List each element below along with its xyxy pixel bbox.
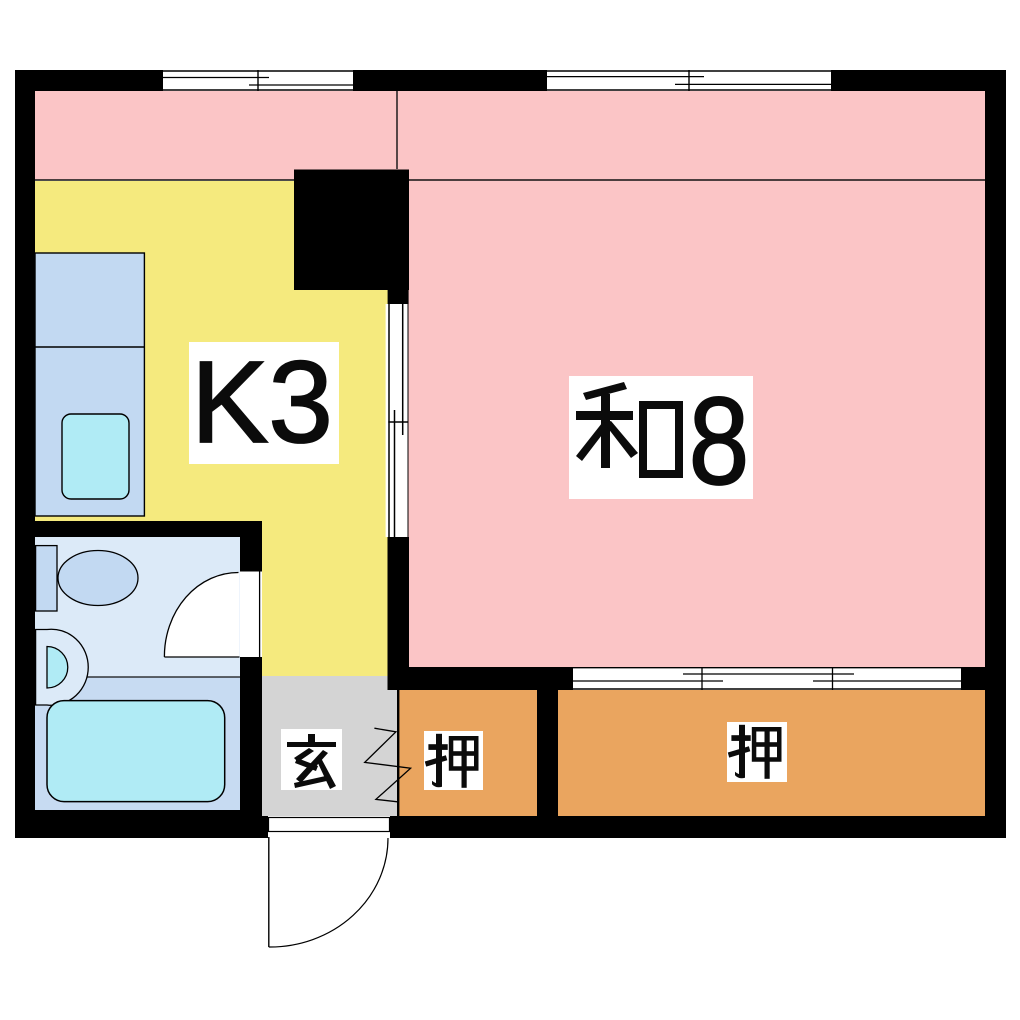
svg-text:K3: K3 <box>191 337 333 467</box>
svg-text:8: 8 <box>689 371 750 510</box>
